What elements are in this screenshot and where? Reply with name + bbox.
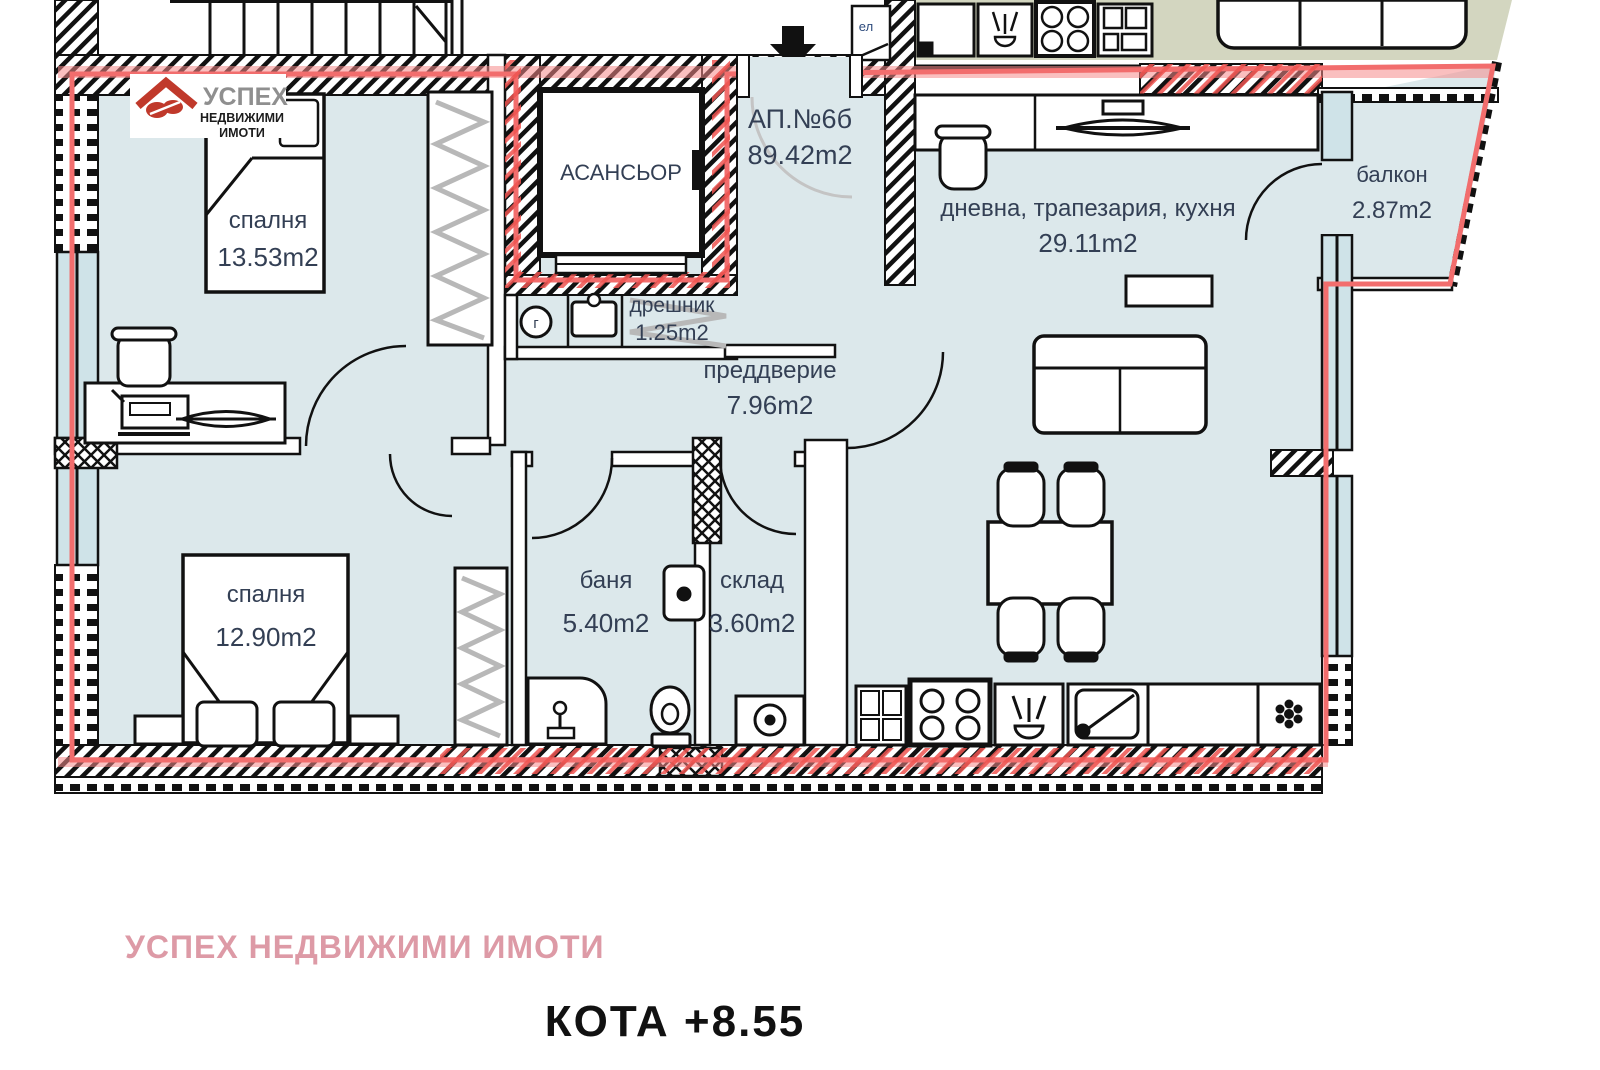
agency-footer-text: УСПЕХ НЕДВИЖИМИ ИМОТИ	[125, 929, 605, 965]
dining-chair-4-back	[1064, 652, 1098, 662]
wall-service-strip-left	[505, 295, 517, 359]
storage-name: склад	[720, 567, 784, 594]
elevator: АСАНСЬОР	[540, 90, 702, 273]
red-hatch-bottom	[440, 748, 1322, 774]
wall-left-lower	[55, 565, 98, 745]
elevator-door-marker	[692, 150, 702, 190]
neighbor-burner-3	[1042, 31, 1062, 51]
nightstand-right	[350, 716, 398, 744]
pillow-right	[274, 702, 334, 746]
desk-chair-back	[112, 328, 176, 340]
burner-1	[921, 690, 943, 712]
storage-fixtures	[736, 696, 804, 745]
neighbor-burner-1	[1042, 7, 1062, 27]
shower-faucet-icon	[554, 702, 566, 714]
washing-machine-center	[765, 715, 775, 725]
nightstand-left	[135, 716, 183, 744]
apartment-area: 89.42m2	[747, 140, 852, 170]
electrical-label: ел	[859, 19, 873, 34]
cabinet-cell-4	[883, 719, 901, 740]
bedroom1-name: спалня	[229, 207, 308, 234]
bedroom2-area: 12.90m2	[215, 622, 316, 652]
electrical-panel: ел	[852, 6, 890, 60]
dining-chair-3-back	[1004, 652, 1038, 662]
elevator-label: АСАНСЬОР	[560, 160, 682, 185]
toilet-tank	[652, 734, 690, 746]
balcony-name: балкон	[1356, 162, 1427, 187]
wall-storage-right	[805, 440, 847, 745]
storage-area: 3.60m2	[709, 608, 796, 638]
neighbor-cab-cell2	[1126, 8, 1146, 28]
red-hatch-shaft-left	[505, 60, 521, 278]
wall-service-strip-bottom	[505, 347, 737, 359]
logo-line1: НЕДВИЖИМИ	[200, 111, 284, 125]
wardrobe-bedroom2	[455, 568, 507, 745]
dining-chair-2	[1058, 468, 1104, 526]
desk-chair	[118, 336, 170, 386]
living-name: дневна, трапезария, кухня	[940, 195, 1235, 222]
neighbor-cab-cell1	[1104, 8, 1122, 28]
logo-name: УСПЕХ	[203, 83, 288, 111]
closet-name: дрешник	[630, 294, 716, 317]
gas-meter-label: г	[533, 315, 539, 332]
wall-left-upper	[55, 95, 98, 252]
cabinet-cell-3	[861, 719, 879, 740]
printer-slot	[130, 403, 170, 415]
entrance-jamb-left	[737, 55, 749, 97]
wall-sink-drain	[677, 587, 691, 601]
dining-chair-3	[998, 598, 1044, 656]
pillow-left	[197, 702, 257, 746]
shower-faucet-base	[548, 728, 574, 738]
agency-logo: УСПЕХ НЕДВИЖИМИ ИМОТИ	[130, 74, 288, 140]
window-right-1	[1322, 92, 1352, 160]
living-area: 29.11m2	[1038, 228, 1137, 258]
wall-divider-stub	[452, 438, 490, 454]
red-hatch-shaft-bottom	[505, 272, 730, 288]
cabinet-cell-1	[861, 691, 879, 715]
burner-2	[957, 690, 979, 712]
bedroom2-name: спалня	[227, 581, 306, 608]
hallway-name: преддверие	[703, 357, 836, 384]
bathroom-area: 5.40m2	[563, 608, 650, 638]
dining-chair-1-back	[1004, 462, 1038, 472]
neighbor-cab-cell3	[1104, 34, 1118, 50]
armchair-back	[936, 126, 990, 138]
burner-3	[921, 717, 943, 739]
closet-area: 1.25m2	[635, 320, 708, 345]
coffee-table	[1126, 276, 1212, 306]
armchair	[940, 133, 986, 189]
neighbor-bed	[1218, 0, 1466, 48]
floor-plan-svg: АСАНСЬОР г	[0, 0, 1600, 1070]
dining-chair-2-back	[1064, 462, 1098, 472]
wall-bottom-outer	[55, 777, 1322, 793]
neighbor-small-unit	[920, 42, 933, 55]
floor-plan-page: АСАНСЬОР г	[0, 0, 1600, 1070]
logo-line2: ИМОТИ	[219, 126, 265, 140]
burner-4	[957, 717, 979, 739]
apartment-id: АП.№6б	[748, 104, 852, 134]
toilet-inner	[662, 704, 678, 724]
neighbor-burner-4	[1068, 31, 1088, 51]
neighbor-burner-2	[1068, 7, 1088, 27]
counter-empty	[1148, 684, 1260, 745]
neighbor-cab-cell4	[1122, 34, 1146, 50]
dining-table	[988, 522, 1112, 604]
dining-chair-4	[1058, 598, 1104, 656]
balcony-area: 2.87m2	[1352, 197, 1432, 224]
dishwasher-knob	[1076, 724, 1090, 738]
entrance-door-gap	[745, 57, 853, 97]
red-hatch-top-right	[1140, 64, 1322, 94]
entrance-jamb-right	[850, 55, 862, 97]
tv-stand	[1103, 101, 1143, 114]
wall-corner-topleft	[55, 0, 98, 55]
kitchen-counter	[856, 680, 1320, 745]
cabinet-cell-2	[883, 691, 901, 715]
dining-chair-1	[998, 468, 1044, 526]
wall-vestibule-bottom	[725, 345, 835, 357]
bathroom-name: баня	[580, 567, 633, 594]
wall-cross-block-bath	[693, 438, 721, 543]
wardrobe-bedroom1	[428, 92, 492, 345]
red-hatch-shaft-right	[712, 60, 730, 278]
small-sink-faucet-icon	[588, 294, 600, 306]
hallway-area: 7.96m2	[727, 390, 814, 420]
wall-bath-left	[512, 452, 526, 745]
bedroom1-area: 13.53m2	[217, 242, 318, 272]
elevation-label: КОТА +8.55	[545, 997, 806, 1046]
balcony-door-gap	[1320, 162, 1354, 234]
